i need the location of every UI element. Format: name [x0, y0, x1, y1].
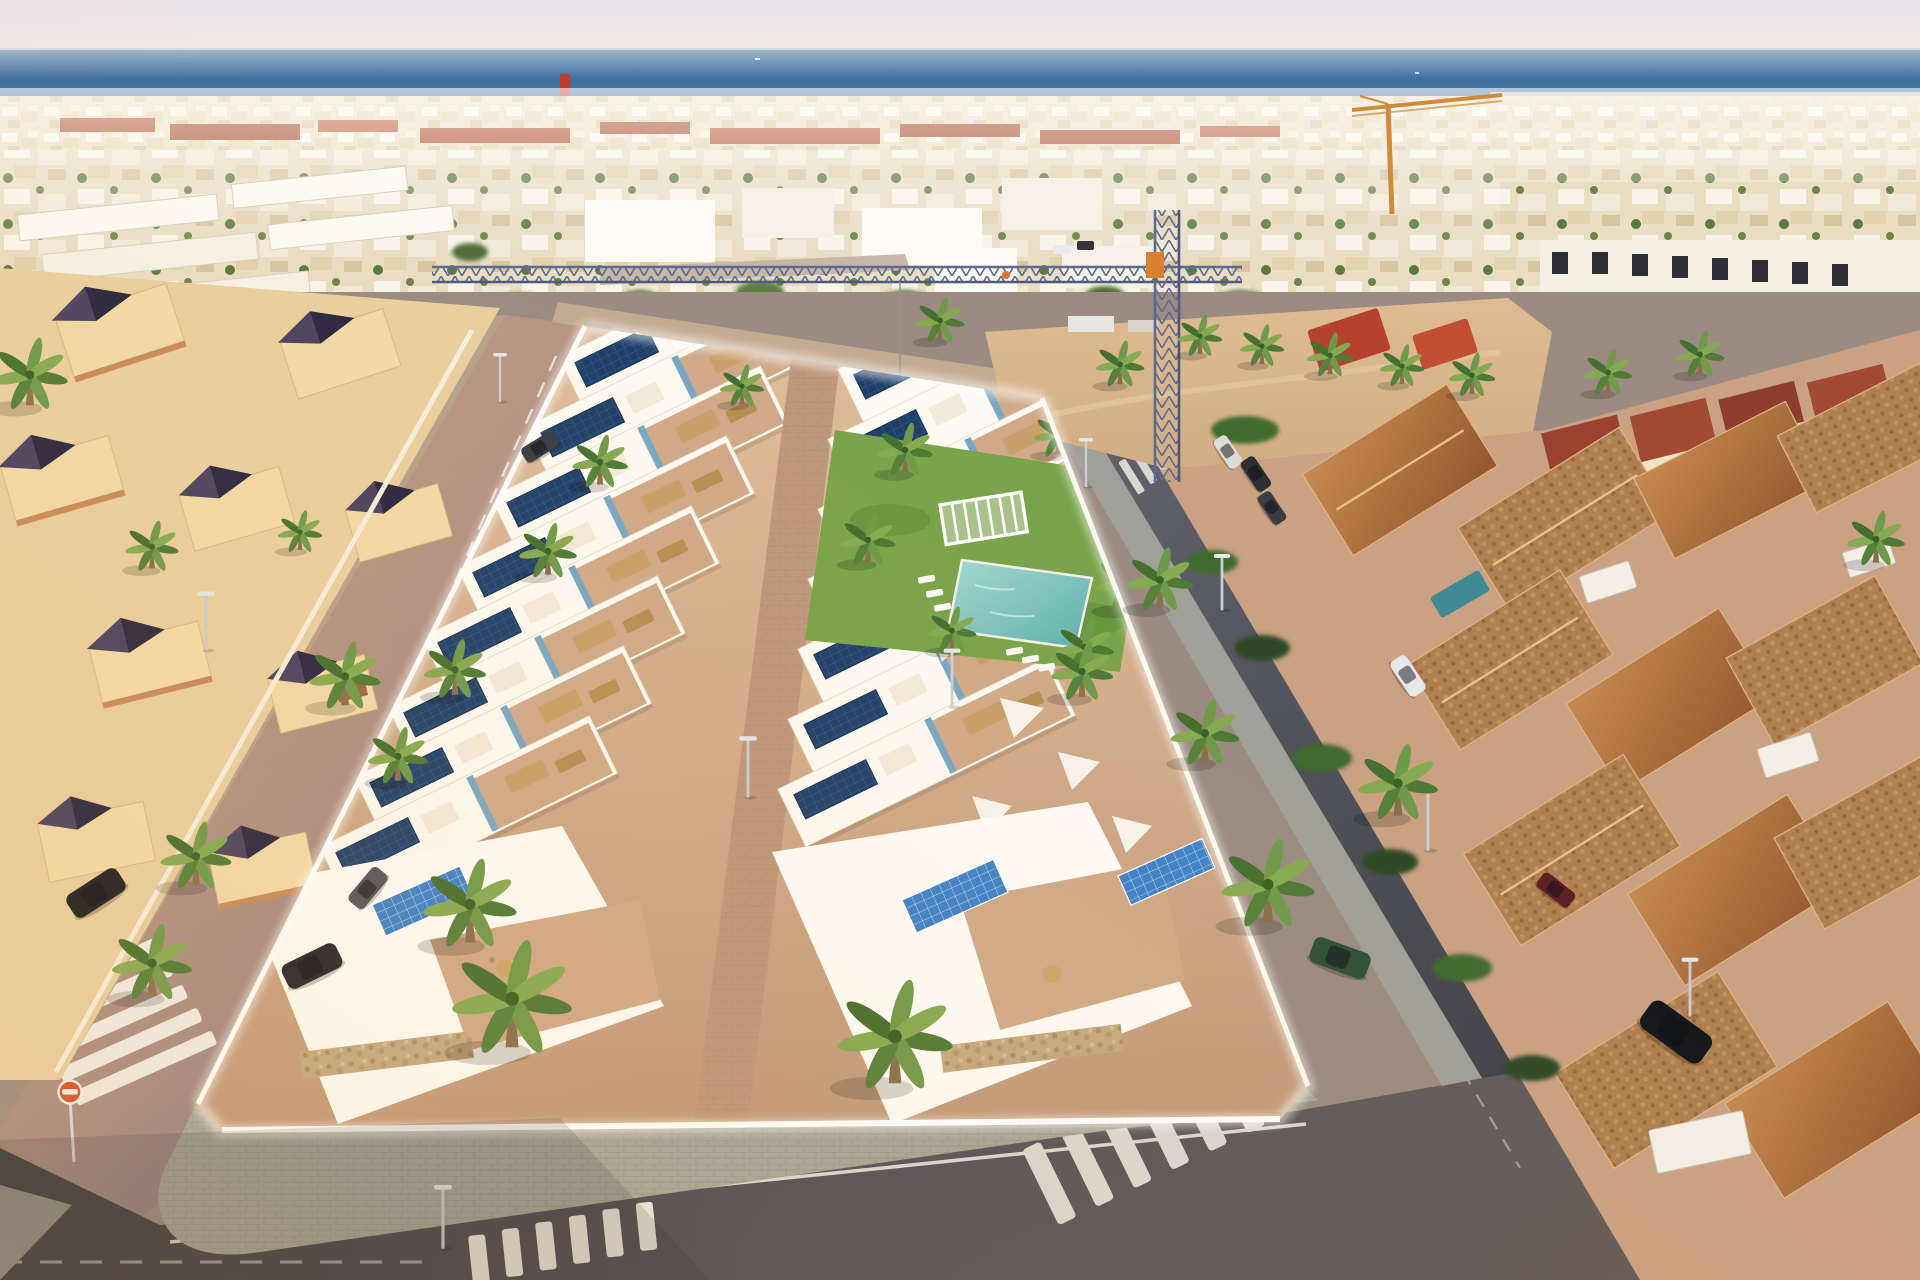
aerial-scene	[0, 0, 1920, 1280]
warm-glow-overlay	[0, 0, 1920, 1280]
screenshot-root	[0, 0, 1920, 1280]
